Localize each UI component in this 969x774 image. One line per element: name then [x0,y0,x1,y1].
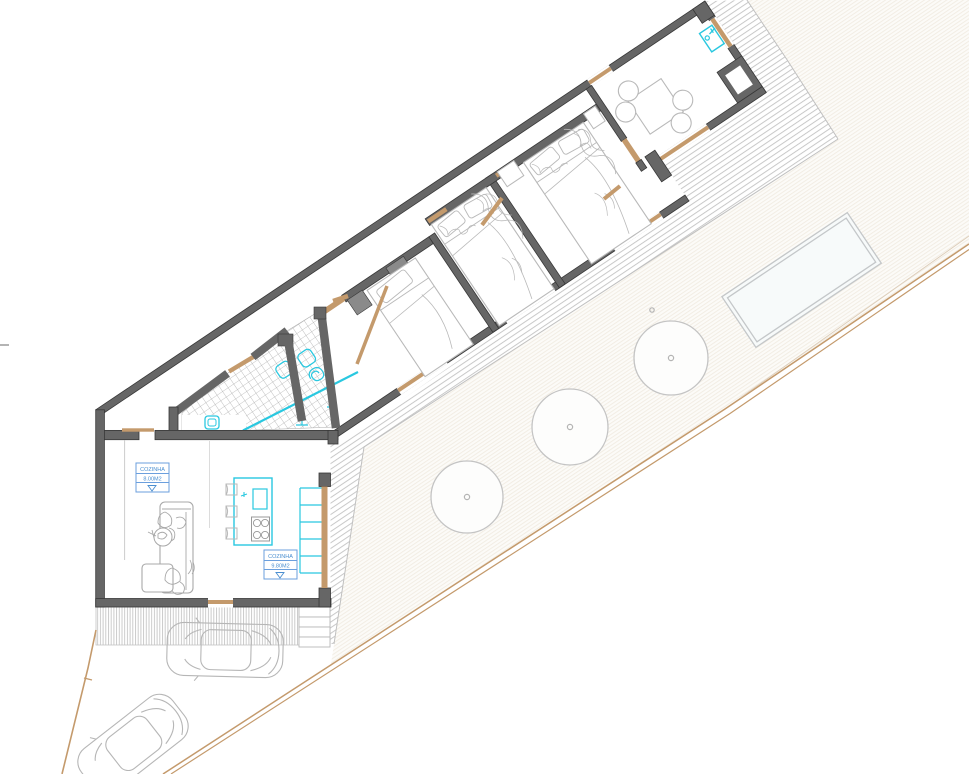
svg-text:8.00M2: 8.00M2 [143,477,161,483]
svg-text:COZINHA: COZINHA [140,467,165,473]
svg-text:9.80M2: 9.80M2 [271,564,289,570]
svg-text:COZINHA: COZINHA [268,554,293,560]
